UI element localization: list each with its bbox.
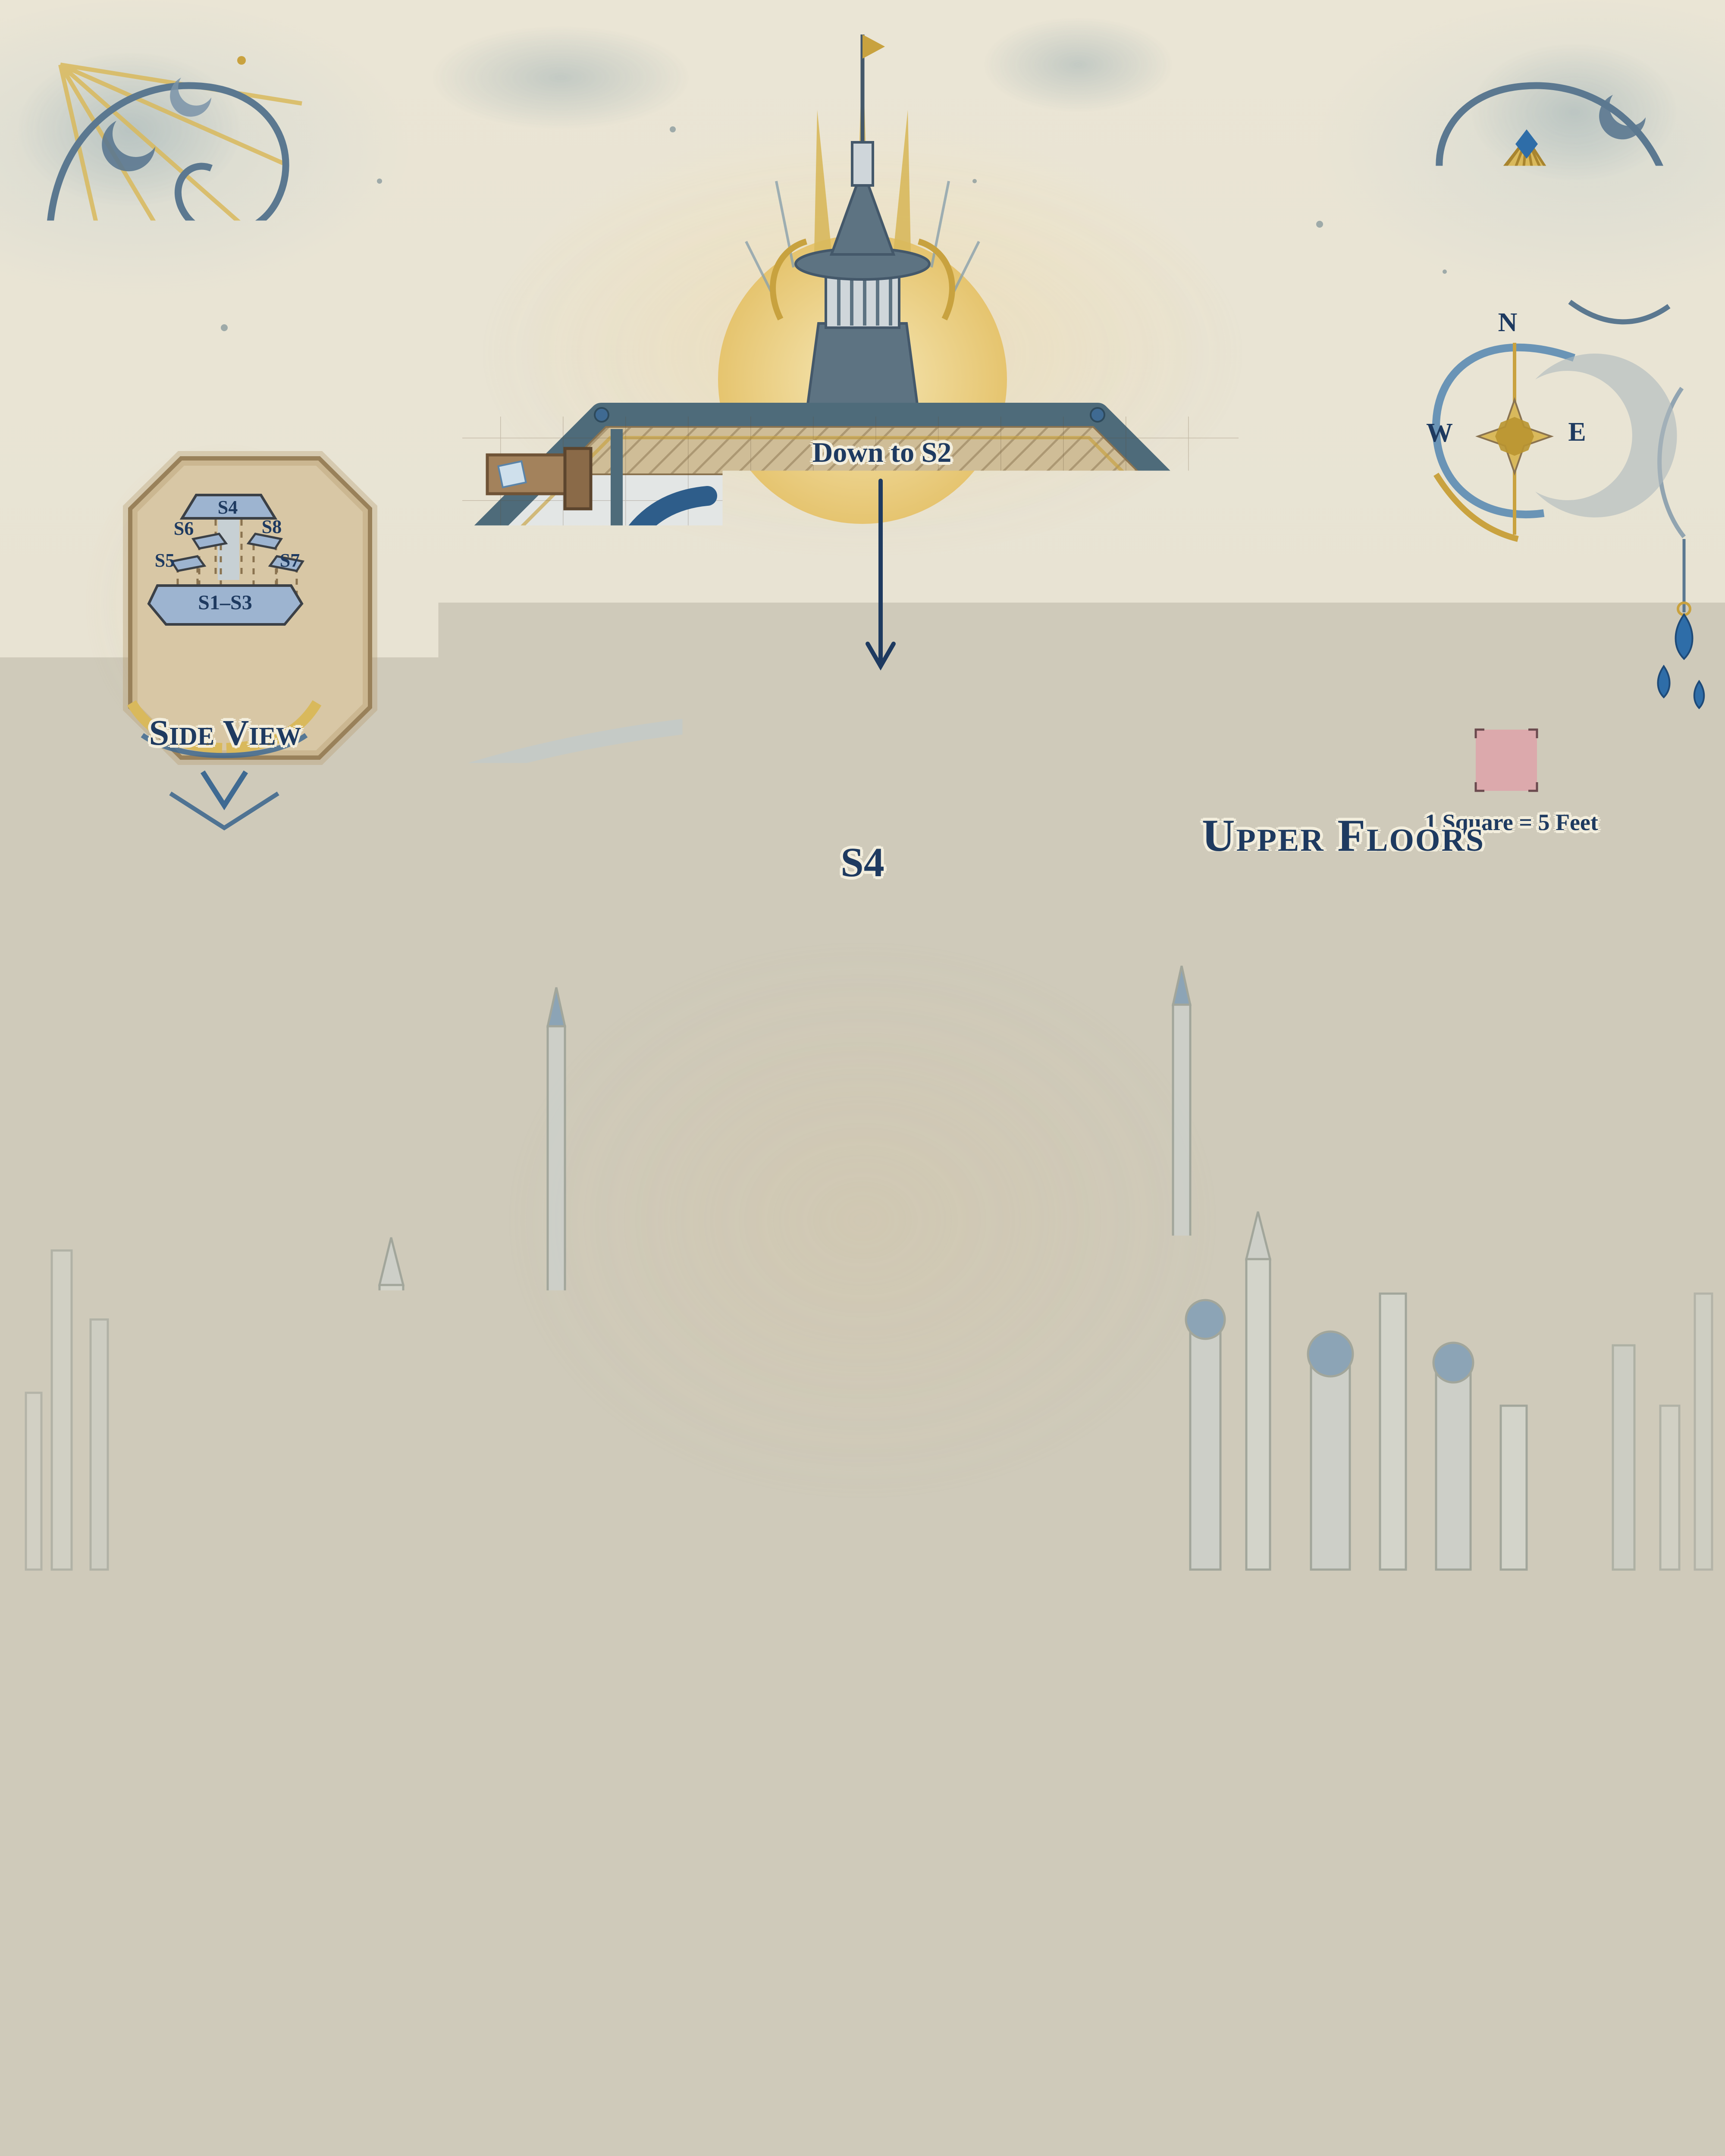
compass-east-label: E — [1568, 419, 1586, 445]
inset-s5-note: Down to S1 — [208, 1420, 347, 1448]
first-floor-map-group — [125, 1585, 1600, 2156]
chair-icon — [254, 1292, 285, 1330]
map-artwork — [0, 0, 1725, 2156]
room-label-s7: S7 — [1408, 1315, 1452, 1356]
tray-table-icon — [1332, 1698, 1433, 1738]
jewel-drop-icon — [1658, 666, 1670, 697]
bed-icon — [1348, 1257, 1394, 1334]
bench-icon — [1242, 2101, 1296, 2156]
side-view-label-s7: S7 — [280, 551, 300, 570]
side-view-label-s4: S4 — [218, 498, 238, 517]
stair-note-up-s4: Up to S4 — [806, 1710, 910, 1738]
staircase-icon — [270, 1340, 333, 1416]
bookshelf-icon — [1497, 1304, 1515, 1346]
room-label-s8: S8 — [1421, 1023, 1465, 1064]
inset-s8-note: Down to S3 — [1411, 1187, 1550, 1216]
long-counter-icon — [1438, 1851, 1533, 2156]
nightstand-icon — [1397, 1256, 1420, 1277]
stair-note-up-s6: Up to S6 — [186, 1588, 291, 1617]
shrine-icon — [813, 2053, 839, 2078]
washstand-icon — [155, 1312, 204, 1340]
room-label-s1: S1 — [373, 1953, 416, 1994]
jewel-drop-icon — [1694, 681, 1704, 708]
chest-icon — [152, 1344, 204, 1380]
room-label-s6: S6 — [218, 1005, 262, 1046]
side-view-label-s1-s3: S1–S3 — [198, 592, 252, 613]
basin-icon — [314, 961, 337, 984]
upper-map-stair-note: Down to S2 — [812, 439, 952, 467]
map-title-sanctum: Sanctum — [714, 1163, 1019, 1236]
desk-icon — [302, 1000, 343, 1065]
basin-icon — [1472, 1256, 1495, 1278]
side-view-panel-group — [130, 458, 370, 828]
compass-north-label: N — [1498, 309, 1518, 336]
staircase-icon — [1461, 1101, 1528, 1184]
jewel-drop-icon — [1676, 614, 1693, 659]
room-label-s2: S2 — [804, 1980, 848, 2021]
room-label-s4: S4 — [841, 842, 884, 883]
side-view-heading: Side View — [149, 715, 301, 751]
side-view-label-s8: S8 — [262, 517, 282, 536]
map-title-the: The — [824, 1123, 905, 1164]
staircase-icon — [274, 1099, 342, 1185]
stair-note-up-s8: Up to S8 — [1395, 1590, 1499, 1618]
upper-floors-heading: Upper Floors — [1202, 813, 1485, 859]
jewel-drop-icon — [45, 371, 59, 407]
desk-icon — [159, 961, 223, 1071]
wall-rosette-icon — [224, 1255, 252, 1282]
door-icon — [1213, 647, 1240, 703]
inset-s6-note: Down to S1 — [217, 1185, 357, 1214]
side-view-label-s5: S5 — [155, 551, 175, 570]
scale-legend-group — [1476, 730, 1537, 791]
room-label-s5: S5 — [220, 1333, 263, 1375]
door-icon — [458, 647, 486, 703]
spiral-staircase-icon — [181, 1634, 328, 1781]
stool-icon — [1423, 1159, 1450, 1184]
desk-icon — [1371, 1372, 1436, 1403]
bed-icon — [1352, 1063, 1413, 1188]
sanctum-map: Down to S2 S4 S4 S6 S8 S5 S7 S1–S3 Side … — [0, 0, 1725, 2156]
compass-west-label: W — [1426, 420, 1453, 446]
side-view-label-s6: S6 — [174, 519, 194, 538]
room-label-s3: S3 — [1267, 1933, 1311, 1974]
inset-s7-note: Down to S3 — [1402, 1481, 1542, 1510]
desk-icon — [1404, 964, 1533, 1005]
magic-circle-icon — [1080, 1759, 1374, 2053]
scale-square-swatch — [1476, 730, 1537, 791]
